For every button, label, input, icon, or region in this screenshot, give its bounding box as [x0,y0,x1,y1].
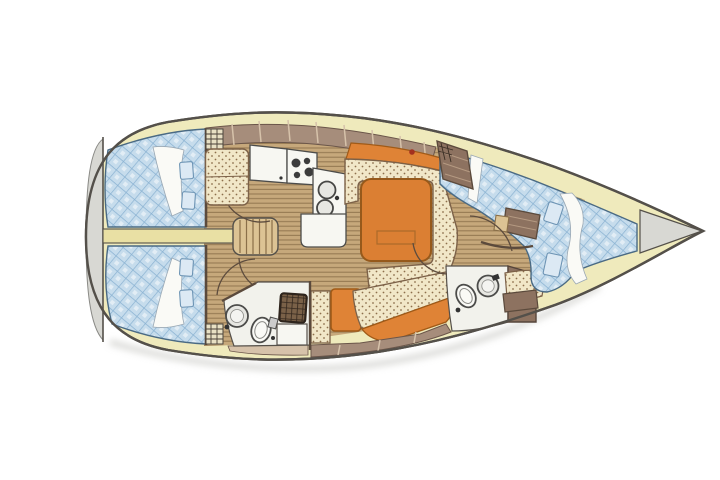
yacht-layout-diagram [0,0,720,480]
shower-grate-icon [279,293,307,323]
yacht-floor-plan [0,0,720,480]
port-bench [206,149,249,205]
centerline-passage [103,229,236,243]
settee-side-cushion [311,291,330,343]
stern-swim-platform [86,139,103,340]
head-cabinet [277,324,307,345]
fridge-latch [279,176,282,179]
forward-stool [494,215,509,232]
aft-starboard-pillow [179,259,193,277]
lamp-knob [409,149,415,155]
aft-port-pillow [179,162,193,180]
salon-table [361,179,431,261]
forward-seat-cabinet [503,290,538,312]
washbasin-icon [478,274,500,297]
aft-port-pillow [181,192,195,210]
galley-lower-counter [301,214,346,247]
aft-starboard-pillow [179,290,193,308]
